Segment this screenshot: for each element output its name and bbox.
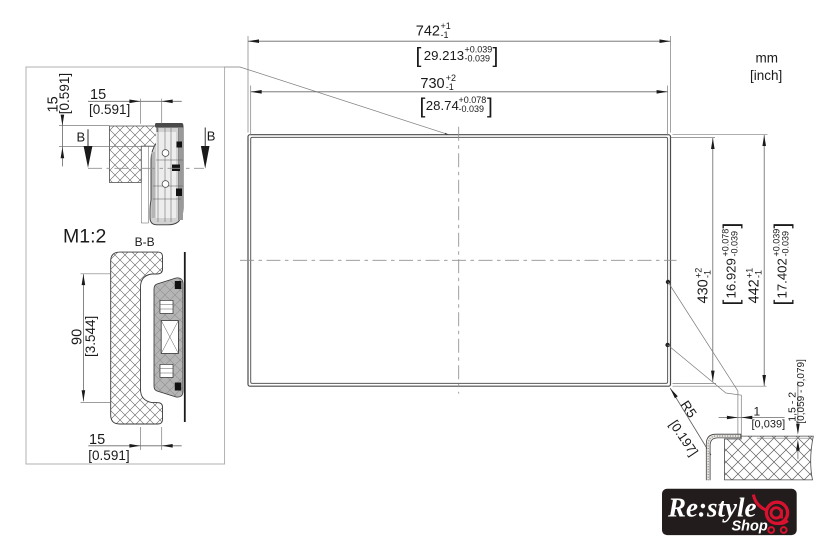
svg-text:1: 1 <box>754 405 761 419</box>
svg-text:[: [ <box>416 45 422 68</box>
svg-text:28.74: 28.74 <box>426 98 459 113</box>
svg-text:430: 430 <box>696 279 712 303</box>
svg-text:Shop: Shop <box>732 519 768 535</box>
svg-text:]: ] <box>493 45 499 68</box>
svg-text:17.402: 17.402 <box>775 258 790 298</box>
svg-text:]: ] <box>487 95 493 118</box>
svg-text:-1: -1 <box>703 270 713 278</box>
svg-text:mm: mm <box>756 51 779 66</box>
svg-text:-0.039: -0.039 <box>465 54 491 64</box>
svg-text:B: B <box>77 129 86 144</box>
svg-text:730: 730 <box>420 76 444 92</box>
svg-text:B: B <box>207 129 216 144</box>
svg-text:-1: -1 <box>441 30 449 40</box>
svg-text:-1: -1 <box>754 270 764 278</box>
svg-text:742: 742 <box>416 24 440 40</box>
svg-text:15: 15 <box>90 87 106 103</box>
svg-text:[: [ <box>720 300 743 306</box>
svg-text:[: [ <box>420 95 426 118</box>
svg-text:[inch]: [inch] <box>750 68 782 83</box>
svg-text:[0.591]: [0.591] <box>88 448 129 463</box>
svg-text:15: 15 <box>89 432 105 448</box>
svg-text:-0.039: -0.039 <box>729 231 739 257</box>
svg-text:[: [ <box>771 300 794 306</box>
svg-text:B-B: B-B <box>135 235 155 249</box>
svg-text:[0.591]: [0.591] <box>57 73 72 114</box>
svg-text:[3.544]: [3.544] <box>83 316 98 357</box>
svg-text:-0.039: -0.039 <box>780 231 790 257</box>
svg-text:-0.039: -0.039 <box>459 104 485 114</box>
svg-text:29.213: 29.213 <box>424 48 464 63</box>
svg-text:442: 442 <box>747 279 763 303</box>
svg-text:16.929: 16.929 <box>724 258 739 298</box>
svg-text:-1: -1 <box>446 82 454 92</box>
svg-text:M1:2: M1:2 <box>63 226 106 248</box>
svg-text:[0,059 - 0,079]: [0,059 - 0,079] <box>796 359 807 424</box>
svg-text:]: ] <box>720 223 743 229</box>
svg-text:[0.591]: [0.591] <box>89 102 130 117</box>
svg-text:]: ] <box>771 223 794 229</box>
svg-text:[0,039]: [0,039] <box>752 419 786 431</box>
